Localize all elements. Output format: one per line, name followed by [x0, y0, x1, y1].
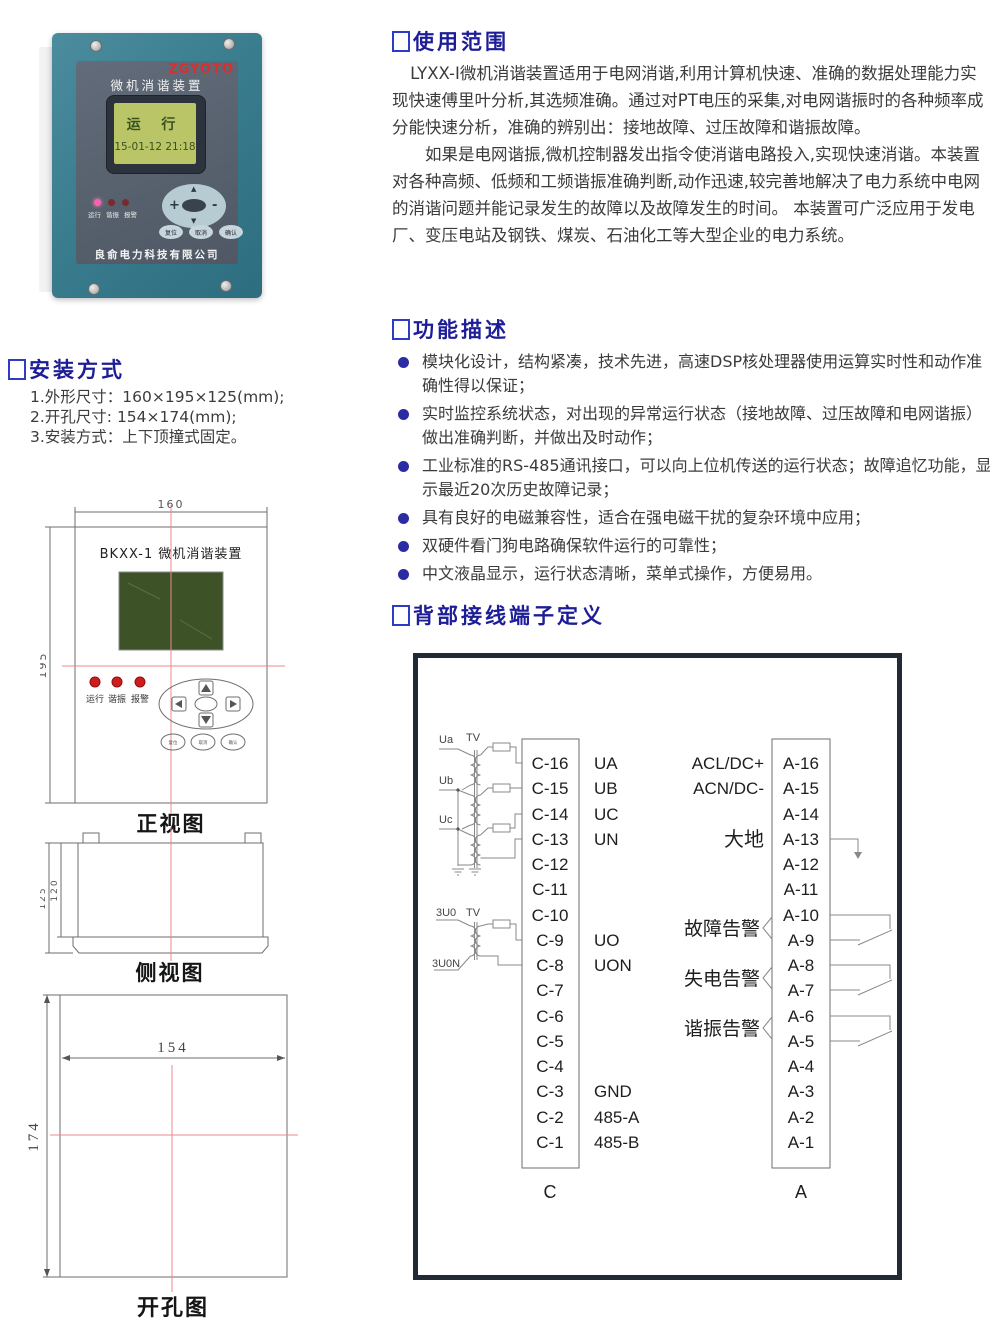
fault-brace [763, 917, 772, 939]
cutout-outline [60, 995, 287, 1277]
svg-text:A-5: A-5 [788, 1032, 814, 1051]
led-labels: 运行 谐振 报警 [88, 209, 148, 219]
cutout-width-dim: 154 [157, 1040, 189, 1056]
a-terminal-strip [772, 739, 830, 1168]
acl-label: ACL/DC+ [692, 754, 764, 773]
down-arrow-key[interactable]: ▼ [191, 217, 196, 225]
lcd-status-text: 运 行 [114, 114, 196, 134]
ua-label: Ua [439, 734, 454, 746]
svg-text:A-2: A-2 [788, 1108, 814, 1127]
front-view-leds: 运行 谐振 报警 [86, 677, 149, 705]
feature-item: 中文液晶显示，运行状态清晰，菜单式操作，方便易用。 [392, 562, 990, 586]
confirm-button[interactable]: 确认 [219, 225, 243, 239]
svg-text:A-1: A-1 [788, 1133, 814, 1152]
svg-text:C-6: C-6 [536, 1007, 563, 1026]
c-terminal-strip [522, 739, 579, 1168]
install-title-text: 安装方式 [29, 354, 125, 384]
nav-center-key[interactable] [182, 199, 206, 212]
front-led-label-run: 运行 [86, 693, 104, 705]
cutout-drawing: 154 174 开孔图 [10, 985, 310, 1326]
a-terminal-ids: A-16 A-15 A-14 A-13 A-12 A-11 A-10 A-9 A… [783, 754, 819, 1152]
title-square-icon [392, 319, 410, 340]
svg-text:A-9: A-9 [788, 931, 814, 950]
svg-text:UC: UC [594, 805, 619, 824]
screw-icon [223, 38, 235, 50]
ub-label: Ub [439, 775, 453, 787]
svg-text:A-12: A-12 [783, 855, 819, 874]
resistor-icon [493, 743, 510, 751]
svg-text:A-6: A-6 [788, 1007, 814, 1026]
bullet-icon [398, 357, 409, 368]
minus-key[interactable]: - [212, 198, 217, 213]
svg-text:A-14: A-14 [783, 805, 819, 824]
reset-button[interactable]: 复位 [159, 225, 183, 239]
svg-text:C-2: C-2 [536, 1108, 563, 1127]
svg-text:C-15: C-15 [532, 779, 569, 798]
svg-text:C-8: C-8 [536, 956, 563, 975]
front-view-navpad [159, 679, 253, 729]
svg-text:C-14: C-14 [532, 805, 569, 824]
front-view-drawing: 160 195 BKXX-1 微机消谐装置 运行 谐振 报警 [40, 495, 290, 840]
svg-text:C-11: C-11 [532, 880, 568, 899]
c-block-name: C [544, 1182, 557, 1202]
usage-title-text: 使用范围 [413, 26, 509, 56]
relay-contact-icon [830, 965, 892, 995]
svg-text:UON: UON [594, 956, 632, 975]
u0-label: 3U0 [436, 907, 456, 919]
install-section-title: 安装方式 [8, 354, 285, 384]
front-cancel-button-label: 取消 [199, 739, 208, 746]
a-right-symbols [830, 839, 892, 1046]
usage-paragraph-2: 如果是电网谐振,微机控制器发出指令使消谐电路投入,实现快速消谐。本装置对各种高频… [392, 141, 988, 249]
resonance-alarm-label: 谐振告警 [684, 1018, 760, 1040]
svg-text:A-7: A-7 [788, 981, 814, 1000]
usage-section: 使用范围 LYXX-I微机消谐装置适用于电网消谐,利用计算机快速、准确的数据处理… [392, 26, 988, 249]
front-confirm-button-label: 确认 [229, 739, 238, 746]
svg-text:A-10: A-10 [783, 906, 819, 925]
features-section-title: 功能描述 [392, 314, 990, 344]
lcd-screen: 运 行 15-01-12 21:18 [114, 103, 196, 164]
device-panel-title: 微机消谐装置 [76, 75, 238, 94]
svg-text:UB: UB [594, 779, 618, 798]
bullet-icon [398, 513, 409, 524]
terminals-section-title: 背部接线端子定义 [392, 600, 605, 630]
svg-text:C-3: C-3 [536, 1082, 563, 1101]
power-loss-alarm-label: 失电告警 [684, 968, 760, 990]
bullet-icon [398, 569, 409, 580]
svg-text:A-11: A-11 [784, 880, 819, 899]
loss-brace [763, 967, 772, 989]
svg-text:C-9: C-9 [536, 931, 563, 950]
svg-text:C-16: C-16 [532, 754, 569, 773]
resonance-led-icon [108, 199, 115, 206]
install-items: 1.外形尺寸：160×195×125(mm); 2.开孔尺寸: 154×174(… [8, 388, 285, 447]
svg-text:A-4: A-4 [788, 1057, 814, 1076]
front-view-buttons: 复位 取消 确认 [161, 734, 245, 750]
relay-contact-icon [830, 915, 892, 945]
usage-section-title: 使用范围 [392, 26, 988, 56]
resonance-brace [763, 1017, 772, 1039]
device-front-frame: ZGYOTO 微机消谐装置 运 行 15-01-12 21:18 运行 谐振 报… [52, 33, 262, 298]
svg-text:C-7: C-7 [536, 981, 563, 1000]
svg-text:UA: UA [594, 754, 618, 773]
a-left-labels: ACL/DC+ ACN/DC- 大地 故障告警 失电告警 谐振告警 [684, 754, 772, 1040]
front-led-label-resonance: 谐振 [108, 693, 126, 705]
svg-text:A-15: A-15 [783, 779, 819, 798]
screw-icon [90, 40, 102, 52]
side-view-caption: 侧视图 [136, 961, 205, 985]
nav-pad[interactable]: ▲ ▼ + - [162, 184, 226, 228]
screw-icon [220, 280, 232, 292]
datasheet-page: ZGYOTO 微机消谐装置 运 行 15-01-12 21:18 运行 谐振 报… [0, 0, 990, 1326]
terminals-title-text: 背部接线端子定义 [413, 600, 605, 630]
install-item: 3.安装方式：上下顶撞式固定。 [30, 428, 285, 447]
bullet-icon [398, 409, 409, 420]
title-square-icon [392, 605, 410, 626]
svg-text:C-10: C-10 [532, 906, 569, 925]
features-section: 功能描述 模块化设计，结构紧凑，技术先进，高速DSP核处理器使用运算实时性和动作… [392, 314, 990, 590]
install-item: 1.外形尺寸：160×195×125(mm); [30, 388, 285, 407]
install-item: 2.开孔尺寸: 154×174(mm); [30, 408, 285, 427]
screw-icon [88, 283, 100, 295]
bullet-icon [398, 541, 409, 552]
led-label-run: 运行 [88, 209, 101, 219]
title-square-icon [8, 359, 26, 380]
svg-text:UN: UN [594, 830, 619, 849]
tv-label: TV [466, 907, 481, 919]
alarm-led-icon [122, 199, 129, 206]
terminal-diagram: Ua TV Ub Uc [418, 658, 897, 1275]
fault-alarm-label: 故障告警 [684, 918, 760, 940]
lcd-bezel: 运 行 15-01-12 21:18 [106, 95, 206, 174]
run-led-icon [94, 199, 101, 206]
install-section: 安装方式 1.外形尺寸：160×195×125(mm); 2.开孔尺寸: 154… [8, 354, 285, 448]
pt-circuit: Ua TV Ub Uc [432, 732, 522, 970]
ground-icon [469, 869, 481, 875]
cutout-dimensions: 154 174 [26, 995, 285, 1277]
cutout-height-dim: 174 [26, 1120, 42, 1152]
tv-label: TV [466, 732, 481, 744]
cancel-button[interactable]: 取消 [189, 225, 213, 239]
cutout-centerlines [50, 1065, 298, 1292]
c-terminal-ids: C-16 C-15 C-14 C-13 C-12 C-11 C-10 C-9 C… [532, 754, 569, 1152]
side-outer-dim: 125 [40, 886, 48, 909]
resistor-icon [493, 784, 510, 792]
svg-text:C-1: C-1 [536, 1133, 563, 1152]
side-view-dimensions: 125 120 [40, 843, 78, 953]
title-square-icon [392, 31, 410, 52]
svg-text:C-12: C-12 [532, 855, 569, 874]
svg-text:A-3: A-3 [788, 1082, 814, 1101]
svg-text:GND: GND [594, 1082, 632, 1101]
svg-text:C-5: C-5 [536, 1032, 563, 1051]
svg-text:A-13: A-13 [783, 830, 819, 849]
relay-contact-icon [830, 1016, 892, 1046]
feature-item: 模块化设计，结构紧凑，技术先进，高速DSP核处理器使用运算实时性和动作准确性得以… [392, 350, 990, 398]
svg-text:UO: UO [594, 931, 620, 950]
svg-text:485-B: 485-B [594, 1133, 639, 1152]
side-inner-dim: 120 [50, 878, 60, 901]
lcd-time-text: 15-01-12 21:18 [114, 141, 196, 153]
company-name: 良俞电力科技有限公司 [76, 247, 238, 262]
features-title-text: 功能描述 [413, 314, 509, 344]
acn-label: ACN/DC- [693, 779, 764, 798]
up-arrow-key[interactable]: ▲ [191, 185, 196, 193]
feature-item: 实时监控系统状态，对出现的异常运行状态（接地故障、过压故障和电网谐振）做出准确判… [392, 402, 990, 450]
svg-text:C-13: C-13 [532, 830, 569, 849]
svg-text:A-8: A-8 [788, 956, 814, 975]
a-block-name: A [795, 1182, 807, 1202]
usage-paragraph-1: LYXX-I微机消谐装置适用于电网消谐,利用计算机快速、准确的数据处理能力实现快… [392, 60, 988, 141]
device-inner-panel: ZGYOTO 微机消谐装置 运 行 15-01-12 21:18 运行 谐振 报… [76, 61, 238, 264]
resistor-icon [493, 920, 510, 928]
side-view-drawing: 125 120 侧视图 [40, 825, 280, 985]
feature-item: 双硬件看门狗电路确保软件运行的可靠性； [392, 534, 990, 558]
earth-label: 大地 [724, 827, 764, 851]
front-led-label-alarm: 报警 [131, 693, 149, 705]
svg-text:A-16: A-16 [783, 754, 819, 773]
bullet-icon [398, 461, 409, 472]
front-height-dim: 195 [40, 652, 49, 679]
feature-item: 工业标准的RS-485通讯接口，可以向上位机传送的运行状态；故障追忆功能，显示最… [392, 454, 990, 502]
front-reset-button-label: 复位 [169, 739, 178, 746]
cutout-caption: 开孔图 [137, 1296, 209, 1321]
usage-body: LYXX-I微机消谐装置适用于电网消谐,利用计算机快速、准确的数据处理能力实现快… [392, 60, 988, 249]
earth-ground-icon [830, 839, 862, 859]
feature-item: 具有良好的电磁兼容性，适合在强电磁干扰的复杂环境中应用； [392, 506, 990, 530]
plus-key[interactable]: + [169, 198, 180, 213]
uc-label: Uc [439, 814, 453, 826]
svg-text:C-4: C-4 [536, 1057, 563, 1076]
terminal-diagram-box: Ua TV Ub Uc [413, 653, 902, 1280]
features-list: 模块化设计，结构紧凑，技术先进，高速DSP核处理器使用运算实时性和动作准确性得以… [392, 350, 990, 586]
resistor-icon [493, 824, 510, 832]
led-label-alarm: 报警 [124, 209, 137, 219]
product-photo: ZGYOTO 微机消谐装置 运 行 15-01-12 21:18 运行 谐振 报… [25, 25, 345, 310]
ground-icon [452, 869, 464, 875]
svg-text:485-A: 485-A [594, 1108, 640, 1127]
c-signal-labels: UA UB UC UN UO UON GND 485-A 485-B [594, 754, 640, 1152]
led-label-resonance: 谐振 [106, 209, 119, 219]
u0n-label: 3U0N [432, 958, 460, 970]
